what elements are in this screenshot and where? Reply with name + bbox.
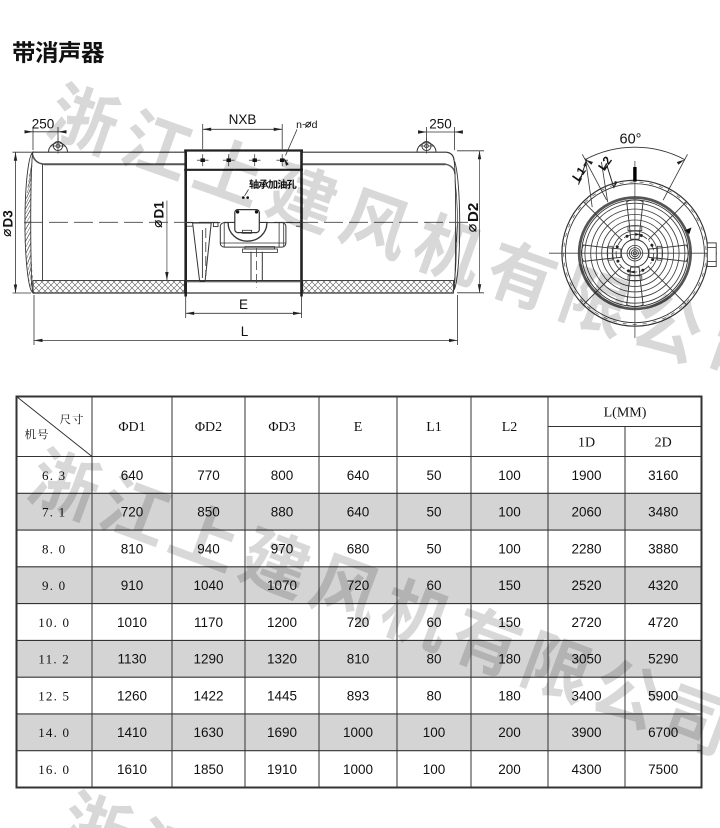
svg-text:640: 640 [347, 468, 370, 483]
svg-text:2280: 2280 [571, 541, 601, 556]
svg-text:100: 100 [423, 762, 446, 777]
svg-text:3900: 3900 [571, 725, 601, 740]
svg-text:4300: 4300 [571, 762, 601, 777]
svg-text:E: E [239, 297, 248, 312]
svg-text:1000: 1000 [343, 762, 373, 777]
svg-text:880: 880 [271, 505, 294, 520]
svg-text:D3: D3 [0, 210, 15, 228]
svg-text:100: 100 [498, 505, 521, 520]
svg-text:4720: 4720 [648, 615, 678, 630]
svg-text:E: E [354, 420, 363, 435]
svg-text:ΦD2: ΦD2 [195, 420, 222, 435]
svg-text:1260: 1260 [117, 689, 147, 704]
svg-text:1170: 1170 [194, 615, 223, 630]
svg-text:5290: 5290 [648, 652, 678, 667]
svg-text:100: 100 [498, 468, 521, 483]
svg-text:1040: 1040 [193, 578, 223, 593]
svg-text:1910: 1910 [267, 762, 297, 777]
svg-text:1320: 1320 [267, 652, 297, 667]
svg-text:1010: 1010 [117, 615, 147, 630]
svg-text:3880: 3880 [648, 541, 678, 556]
svg-text:1630: 1630 [193, 725, 223, 740]
svg-text:L1: L1 [426, 420, 442, 435]
svg-text:L(MM): L(MM) [604, 406, 647, 421]
svg-text:50: 50 [426, 505, 441, 520]
svg-text:1900: 1900 [571, 468, 601, 483]
svg-text:D1: D1 [151, 201, 166, 219]
svg-text:810: 810 [121, 541, 144, 556]
svg-text:1130: 1130 [117, 652, 146, 667]
svg-text:1422: 1422 [193, 689, 223, 704]
svg-text:NXB: NXB [229, 112, 257, 127]
svg-text:11. 2: 11. 2 [38, 652, 70, 667]
svg-text:L: L [241, 324, 249, 339]
svg-text:910: 910 [121, 578, 144, 593]
svg-text:60°: 60° [620, 132, 642, 148]
svg-text:80: 80 [426, 652, 441, 667]
svg-text:2720: 2720 [571, 615, 601, 630]
svg-text:800: 800 [271, 468, 294, 483]
svg-text:ΦD1: ΦD1 [118, 420, 145, 435]
svg-text:2D: 2D [655, 436, 672, 451]
svg-text:150: 150 [498, 578, 521, 593]
svg-text:9. 0: 9. 0 [42, 578, 66, 593]
svg-text:L2: L2 [502, 420, 518, 435]
svg-text:D2: D2 [465, 203, 482, 222]
svg-text:14. 0: 14. 0 [38, 725, 70, 740]
svg-text:1200: 1200 [267, 615, 297, 630]
svg-text:ΦD3: ΦD3 [268, 420, 295, 435]
svg-text:640: 640 [347, 505, 370, 520]
svg-text:1000: 1000 [343, 725, 373, 740]
svg-text:2520: 2520 [571, 578, 601, 593]
svg-text:d: d [312, 119, 318, 131]
svg-text:250: 250 [429, 117, 452, 132]
svg-text:1D: 1D [578, 436, 595, 451]
svg-text:1850: 1850 [193, 762, 223, 777]
svg-text:7500: 7500 [648, 762, 678, 777]
svg-text:893: 893 [347, 689, 370, 704]
svg-text:1690: 1690 [267, 725, 297, 740]
svg-text:100: 100 [423, 725, 446, 740]
svg-text:1290: 1290 [193, 652, 223, 667]
svg-text:200: 200 [498, 725, 521, 740]
svg-text:2060: 2060 [571, 505, 601, 520]
svg-text:16. 0: 16. 0 [38, 762, 70, 777]
svg-text:50: 50 [426, 541, 441, 556]
svg-text:810: 810 [347, 652, 370, 667]
svg-text:1410: 1410 [117, 725, 147, 740]
svg-text:180: 180 [498, 689, 521, 704]
svg-text:4320: 4320 [648, 578, 678, 593]
svg-text:100: 100 [498, 541, 521, 556]
svg-text:1445: 1445 [267, 689, 297, 704]
svg-text:200: 200 [498, 762, 521, 777]
svg-text:770: 770 [197, 468, 220, 483]
svg-text:n: n [296, 119, 302, 131]
svg-text:80: 80 [426, 689, 441, 704]
svg-text:3480: 3480 [648, 505, 678, 520]
svg-text:3160: 3160 [648, 468, 678, 483]
svg-text:10. 0: 10. 0 [38, 615, 70, 630]
svg-text:8. 0: 8. 0 [42, 541, 66, 556]
svg-text:12. 5: 12. 5 [38, 689, 70, 704]
svg-text:50: 50 [426, 468, 441, 483]
svg-text:1610: 1610 [117, 762, 147, 777]
svg-text:680: 680 [347, 541, 370, 556]
